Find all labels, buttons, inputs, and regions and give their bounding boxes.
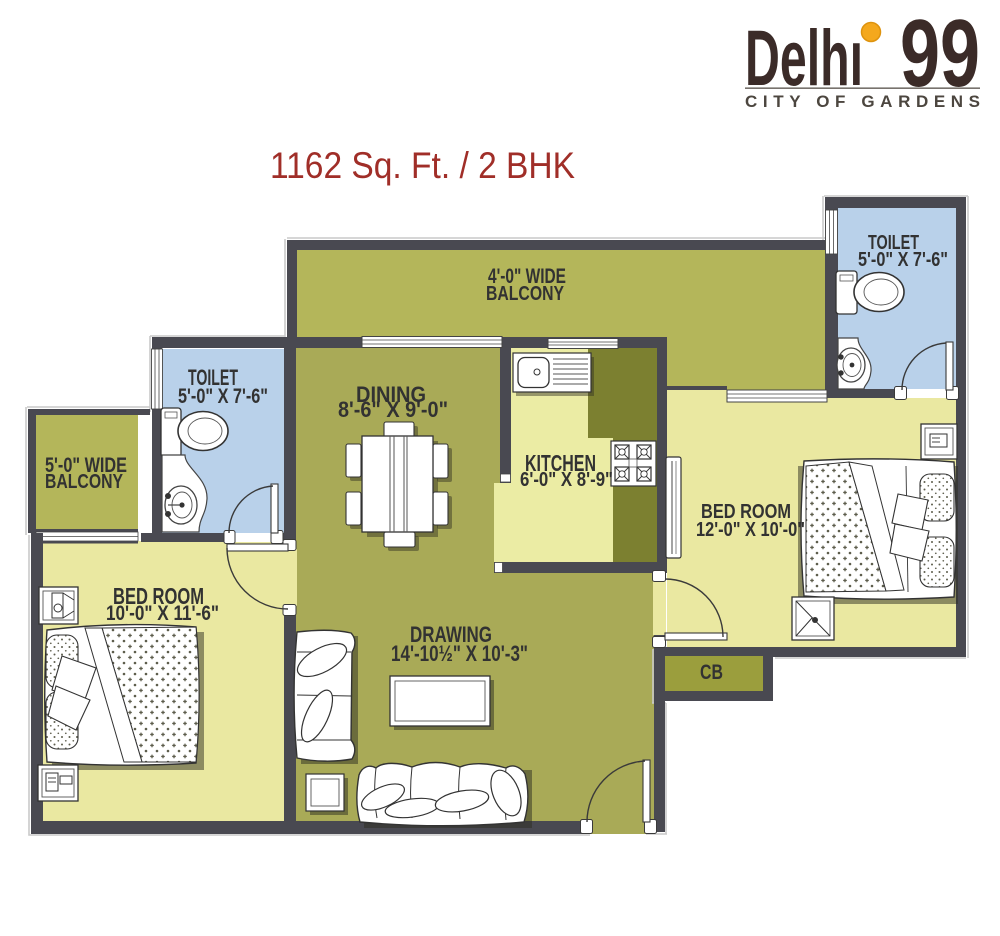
svg-text:14'-10½" X 10'-3": 14'-10½" X 10'-3" (391, 641, 528, 666)
svg-text:5'-0" X 7'-6": 5'-0" X 7'-6" (178, 385, 268, 408)
svg-text:1162 Sq. Ft. / 2 BHK: 1162 Sq. Ft. / 2 BHK (270, 145, 575, 186)
svg-text:CB: CB (700, 661, 723, 684)
svg-text:CITY OF GARDENS: CITY OF GARDENS (745, 92, 980, 111)
svg-text:99: 99 (900, 0, 980, 107)
svg-text:6'-0" X 8'-9": 6'-0" X 8'-9" (520, 469, 613, 491)
svg-text:10'-0" X 11'-6": 10'-0" X 11'-6" (106, 602, 219, 625)
svg-text:BALCONY: BALCONY (486, 283, 565, 305)
svg-text:5'-0" X 7'-6": 5'-0" X 7'-6" (858, 249, 948, 271)
svg-text:12'-0" X 10'-0": 12'-0" X 10'-0" (696, 519, 805, 541)
svg-text:8'-6" X 9'-0": 8'-6" X 9'-0" (338, 397, 448, 422)
svg-text:BALCONY: BALCONY (45, 471, 124, 493)
